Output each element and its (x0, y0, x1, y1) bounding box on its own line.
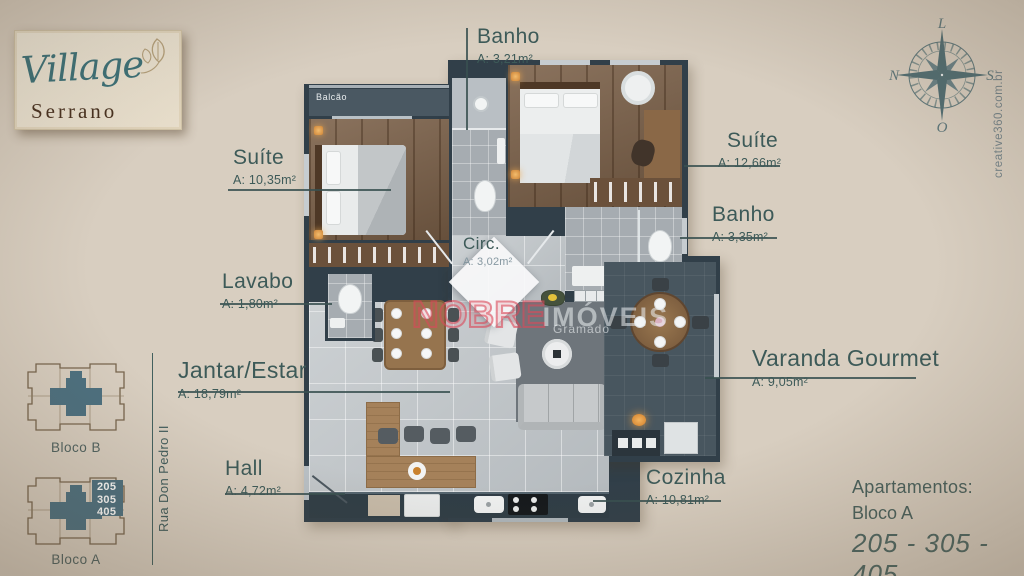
leader-line (466, 28, 468, 130)
street-divider-line (152, 353, 153, 565)
unit-number: 405 (97, 506, 116, 519)
grill-door (646, 438, 656, 448)
compass-letter-bottom: O (937, 120, 948, 134)
armchair (488, 352, 521, 382)
coffee-table (542, 339, 572, 369)
window (682, 218, 687, 254)
plate (391, 308, 402, 319)
plate (391, 348, 402, 359)
room-name: Jantar/Estar (178, 358, 307, 384)
logo-serrano-text: Serrano (31, 99, 117, 124)
dining-chair (372, 348, 383, 362)
toilet (648, 230, 672, 262)
leader-line (228, 189, 391, 191)
room-label-suite-right: Suíte A: 12,66m² (718, 129, 781, 170)
room-area: A: 1,80m² (222, 297, 293, 311)
floorplan-poster: Village Serrano L S O N (0, 0, 1024, 576)
window (540, 60, 590, 65)
room-area: A: 18,79m² (178, 387, 307, 401)
window (610, 60, 660, 65)
info-units: 205 - 305 - 405 (852, 528, 1024, 576)
room-name: Lavabo (222, 270, 293, 294)
balcony-chair (692, 316, 709, 329)
bed-blanket (520, 134, 600, 183)
floorplan: Balcão (302, 58, 720, 524)
room-label-suite-left: Suíte A: 10,35m² (233, 146, 296, 187)
lamp (314, 230, 323, 239)
bar-stool (404, 426, 424, 442)
lamp (511, 72, 520, 81)
unit-number: 205 (97, 481, 116, 494)
room-area: A: 9,05m² (752, 375, 939, 389)
clothes-rack (590, 178, 680, 206)
room-area: A: 10,81m² (646, 493, 726, 507)
closet (309, 243, 449, 267)
grill-door (632, 438, 642, 448)
lamp (314, 126, 323, 135)
bloco-b-label: Bloco B (18, 440, 134, 455)
room-name: Varanda Gourmet (752, 346, 939, 372)
plate (421, 348, 432, 359)
room-label-circ: Circ. A: 3,02m² (463, 234, 513, 268)
room-area: A: 3,35m² (712, 230, 775, 244)
bar-stool (430, 428, 450, 444)
room-label-lavabo: Lavabo A: 1,80m² (222, 270, 293, 311)
plate (391, 328, 402, 339)
fridge (404, 494, 440, 517)
room-area: A: 3,02m² (463, 256, 513, 268)
window (304, 154, 309, 216)
room-name: Suíte (727, 129, 781, 153)
room-name: Suíte (233, 146, 296, 170)
room-name: Circ. (463, 234, 513, 253)
balcony-label: Balcão (316, 92, 347, 102)
shower-glass (638, 210, 640, 264)
bloco-a-label: Bloco A (18, 552, 134, 567)
unit-number: 305 (97, 494, 116, 507)
round-chair (621, 71, 655, 105)
stove-burner (531, 497, 537, 503)
grill-door (618, 438, 628, 448)
room-name: Cozinha (646, 466, 726, 490)
info-title: Apartamentos: (852, 477, 1024, 498)
sink (330, 318, 345, 328)
highlighted-units: 205 305 405 (97, 481, 116, 519)
balcony-chair (652, 354, 669, 367)
logo-card: Village Serrano (14, 30, 182, 130)
room-area: A: 4,72m² (225, 484, 281, 498)
compass-letter-left: N (888, 68, 900, 84)
watermark: NOBRE IMÓVEIS (412, 298, 669, 331)
kitchen-counter (309, 492, 609, 518)
bar-stool (378, 428, 398, 444)
fruit-bowl (408, 462, 426, 480)
room-name: Banho (712, 203, 775, 227)
compass-rose-icon: L S O N (886, 16, 998, 134)
room-area: A: 3,21m² (477, 52, 540, 66)
toilet (338, 284, 362, 314)
plate (674, 316, 686, 328)
street-name: Rua Don Pedro II (156, 392, 171, 532)
balcony-sliding-door (332, 116, 412, 119)
entry-opening (304, 466, 309, 500)
room-area: A: 10,35m² (233, 173, 296, 187)
kitchen-sink (474, 496, 504, 513)
bar-stool (456, 426, 476, 442)
kitchen-window (492, 518, 568, 522)
window (714, 294, 719, 378)
stove-burner (513, 497, 519, 503)
pantry-cabinet (368, 495, 400, 516)
room-area: A: 12,66m² (718, 156, 781, 170)
room-label-cozinha: Cozinha A: 10,81m² (646, 466, 726, 507)
watermark-city: Gramado (553, 322, 610, 336)
balcony-chair (652, 278, 669, 291)
compass-letter-top: L (937, 16, 946, 32)
credit-text: creative360.com.br (993, 28, 1005, 178)
watermark-brand: NOBRE (412, 298, 546, 331)
bed-headboard (520, 82, 600, 89)
dining-chair (448, 348, 459, 362)
pillow (326, 151, 341, 185)
pillow (326, 191, 341, 225)
apartment-info: Apartamentos: Bloco A 205 - 305 - 405 A:… (852, 477, 1024, 576)
balcony-railing (309, 85, 449, 88)
shower (452, 78, 506, 130)
room-balcony: Balcão (309, 89, 449, 116)
sink (497, 138, 505, 164)
room-name: Banho (477, 25, 540, 49)
pillow (524, 93, 559, 108)
room-label-varanda: Varanda Gourmet A: 9,05m² (752, 346, 939, 389)
kitchen-sink (578, 496, 606, 513)
building-footprint-bloco-b (18, 358, 134, 436)
stove-burner (531, 506, 537, 512)
info-block: Bloco A (852, 503, 1024, 524)
room-label-jantar: Jantar/Estar A: 18,79m² (178, 358, 307, 401)
plate (654, 336, 666, 348)
pillow (563, 93, 598, 108)
room-label-banho-top: Banho A: 3,21m² (477, 25, 540, 66)
room-name: Hall (225, 457, 281, 481)
room-label-banho-right: Banho A: 3,35m² (712, 203, 775, 244)
toilet (474, 180, 496, 212)
room-label-hall: Hall A: 4,72m² (225, 457, 281, 498)
leaf-icon (129, 35, 173, 79)
sofa (518, 384, 606, 430)
lamp (511, 170, 520, 179)
grill-fire (632, 414, 646, 426)
service-door (664, 422, 698, 454)
building-footprint-bloco-a (18, 472, 134, 550)
stove-burner (513, 506, 519, 512)
